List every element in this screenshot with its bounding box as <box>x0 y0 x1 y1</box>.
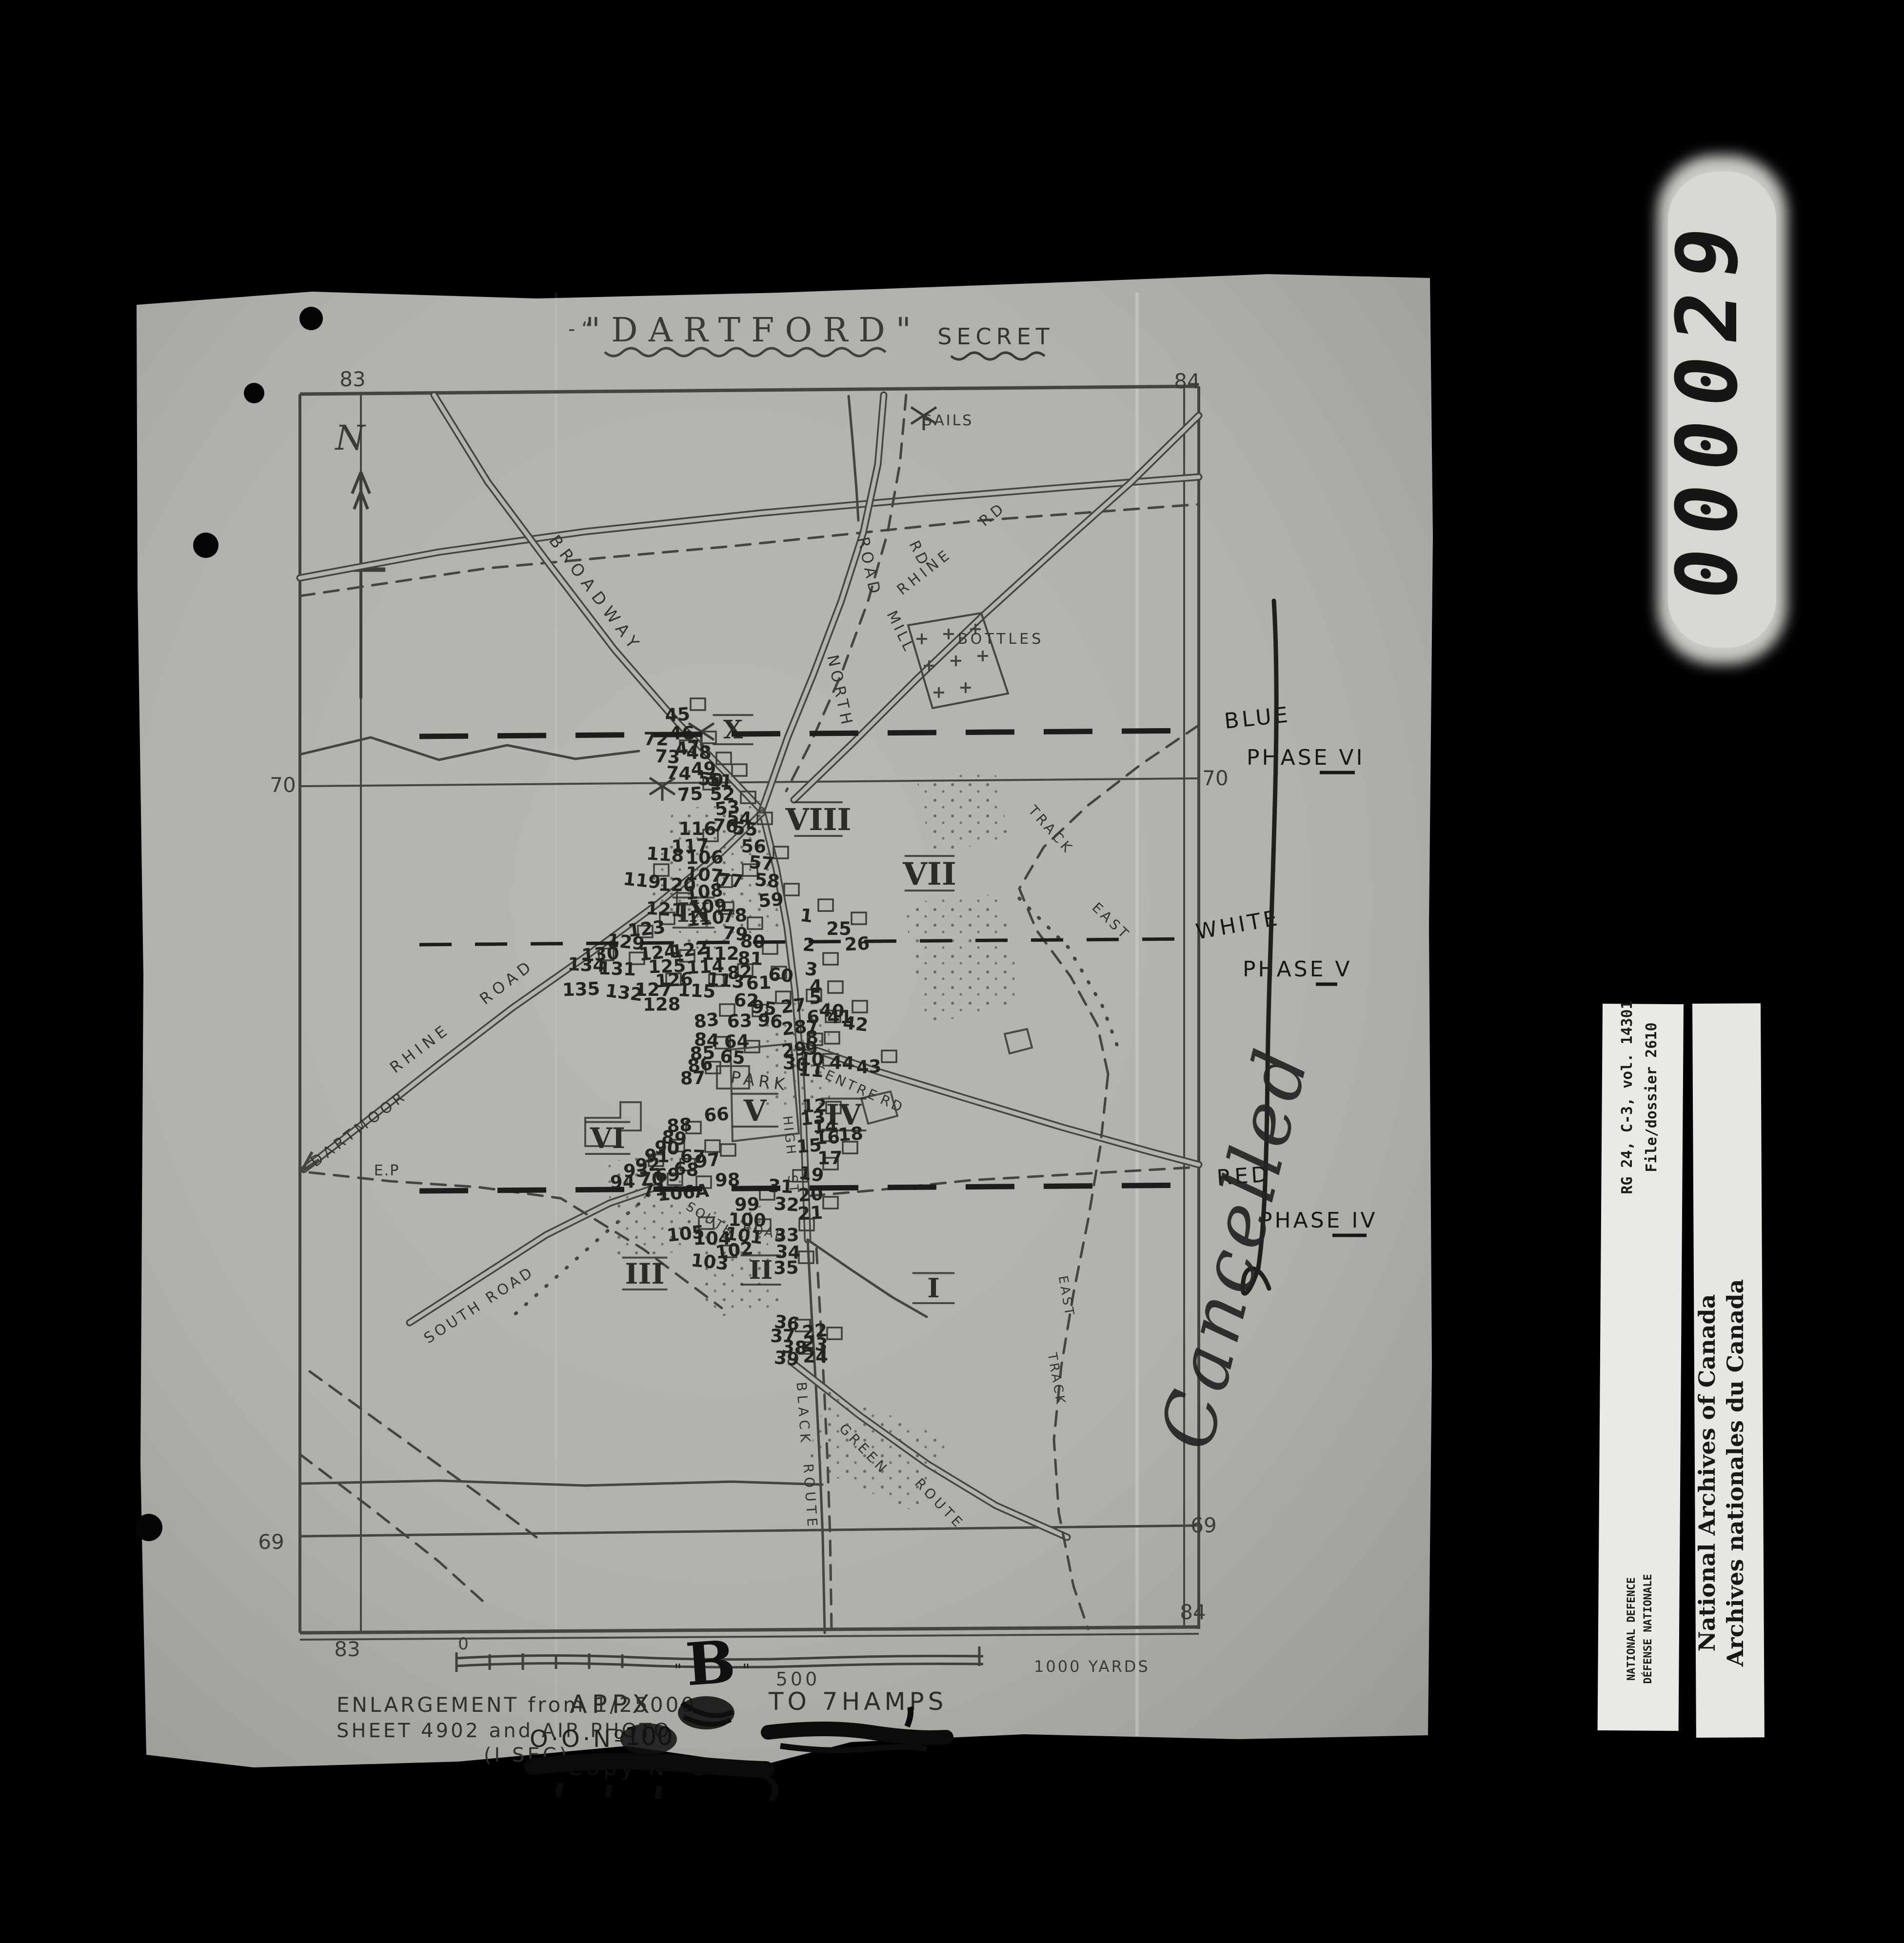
building-number: 42 <box>842 1012 869 1035</box>
road-label: SAILS <box>923 412 974 429</box>
building-number: 30 <box>782 1052 809 1076</box>
building-number: 65 <box>719 1046 746 1069</box>
crossed-out-right <box>768 1729 946 1738</box>
building-number: 21 <box>797 1202 824 1225</box>
oo-scribble <box>620 1724 677 1755</box>
building-number: 2 <box>802 934 816 956</box>
sector-numeral: II <box>749 1255 773 1285</box>
sector-numeral: III <box>625 1257 664 1290</box>
north-label: N <box>334 418 366 458</box>
dept-label-line1: NATIONAL DEFENCE <box>1626 1577 1638 1681</box>
scale-mid-label: 500 <box>776 1668 820 1690</box>
sector-numeral: VIII <box>785 802 851 837</box>
building-number: 35 <box>773 1257 799 1279</box>
scan-canvas: - “ "DARTFORD" SECRET N 8384707069698384… <box>0 0 1904 1943</box>
grid-number: 69 <box>1190 1513 1216 1537</box>
grid-number: 70 <box>270 773 296 797</box>
building-number: 105 <box>666 1221 705 1246</box>
microfilm-frame: - “ "DARTFORD" SECRET N 8384707069698384… <box>0 0 1904 1943</box>
road-label: E.P <box>374 1162 400 1179</box>
building-number: 32 <box>773 1193 800 1215</box>
archive-strip-rg <box>1598 1004 1684 1731</box>
building-number: 43 <box>856 1056 882 1078</box>
sector-numeral: X <box>723 715 743 745</box>
building-number: 28 <box>780 1016 808 1040</box>
building-number: 27 <box>780 994 807 1017</box>
building-number: 128 <box>643 993 681 1015</box>
sector-numeral: V <box>743 1094 767 1128</box>
building-number: 60 <box>768 964 794 987</box>
road-label: BOTTLES <box>958 631 1044 648</box>
scale-end-label: 1000 YARDS <box>1034 1657 1150 1676</box>
frame-counter: 000029 <box>1659 207 1756 606</box>
appx-close-quote: " <box>742 1661 750 1680</box>
building-number: 66 <box>703 1103 730 1126</box>
classification-label: SECRET <box>937 323 1054 350</box>
building-number: 44 <box>829 1052 855 1074</box>
building-number: 103 <box>690 1249 730 1274</box>
note-appx-suffix: TO 7HAMPS <box>768 1687 947 1716</box>
building-number: 59 <box>757 889 784 912</box>
building-number: 96 <box>757 1010 784 1032</box>
punch-hole <box>193 533 218 558</box>
building-number: 18 <box>837 1123 864 1145</box>
grid-number: 83 <box>339 367 365 391</box>
building-number: 110 <box>686 907 726 931</box>
building-number: 1 <box>799 905 814 927</box>
copy-strike <box>533 1761 766 1769</box>
orchard-field <box>917 771 1010 853</box>
note-oo-number: O·O·Nº <box>530 1725 628 1753</box>
sector-numeral: I <box>927 1272 939 1304</box>
building-number: 19 <box>797 1162 825 1186</box>
punch-hole <box>244 383 264 403</box>
national-archives-en: National Archives of Canada <box>1694 1294 1720 1652</box>
building-number: 119 <box>622 868 662 893</box>
building-number: 16 <box>814 1127 841 1149</box>
dept-label-line2: DÉFENSE NATIONALE <box>1642 1574 1654 1684</box>
map-title: "DARTFORD" <box>585 311 922 350</box>
building-number: 76 <box>713 815 739 837</box>
sector-numeral: VII <box>902 856 956 892</box>
rg-reference-line2: File/dossier 2610 <box>1643 1022 1660 1172</box>
scale-zero-label: 0 <box>458 1634 469 1654</box>
building-number: 39 <box>773 1347 800 1370</box>
scanner-streak-2 <box>555 293 557 1736</box>
building-number: 26 <box>844 933 871 955</box>
building-number: 97 <box>694 1149 721 1172</box>
grid-number: 84 <box>1180 1600 1206 1624</box>
punch-hole <box>135 1514 162 1541</box>
building-number: 135 <box>562 978 600 1001</box>
grid-number: 70 <box>1202 766 1228 790</box>
national-archives-fr: Archives nationales du Canada <box>1722 1279 1748 1667</box>
appx-open-quote: " <box>674 1661 682 1680</box>
building-number: 63 <box>727 1010 753 1032</box>
rg-reference-line1: RG 24, C-3, vol. 14301 <box>1619 1000 1636 1194</box>
building-number: 87 <box>680 1067 706 1089</box>
grid-number: 84 <box>1174 369 1200 393</box>
building-number: 118 <box>646 843 685 866</box>
phase-number-label: PHASE V <box>1243 957 1352 982</box>
sector-numeral: VI <box>590 1122 625 1155</box>
note-appx: APPX <box>570 1690 654 1719</box>
grid-number: 69 <box>258 1530 284 1554</box>
building-number: 75 <box>677 783 703 805</box>
building-number: 134 <box>567 953 606 976</box>
grid-number: 83 <box>334 1637 360 1661</box>
note-appx-letter: B <box>684 1627 738 1700</box>
building-number: 120 <box>658 874 696 895</box>
building-number: 74 <box>666 762 692 785</box>
punch-hole <box>299 307 323 330</box>
phase-number-label: PHASE VI <box>1247 745 1365 770</box>
